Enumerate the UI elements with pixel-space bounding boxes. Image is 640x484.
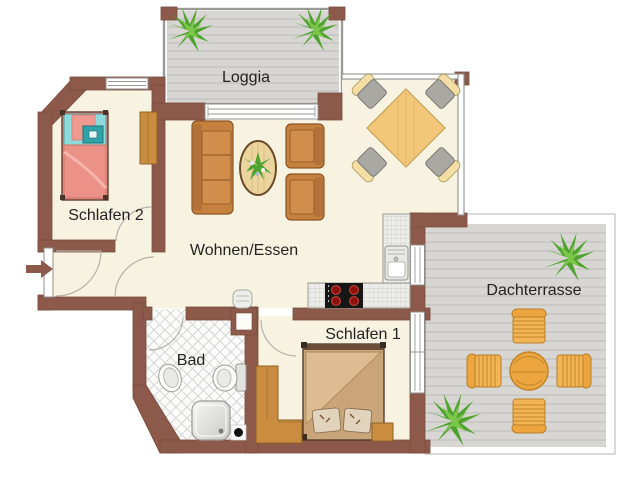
dining-set (350, 72, 462, 184)
pillow (312, 408, 341, 434)
terrace-chair (467, 354, 501, 388)
burner (350, 297, 359, 306)
bed-post (60, 110, 65, 115)
window-loggia-door (205, 104, 318, 119)
floor-plan-svg: Loggia Schlafen 2 Wohnen/Essen Bad Schla… (0, 0, 640, 484)
floor-plan: Loggia Schlafen 2 Wohnen/Essen Bad Schla… (0, 0, 640, 484)
loggia-corner-post (329, 7, 345, 20)
terrace-chair (512, 399, 546, 433)
armchair-seat (290, 130, 314, 162)
burner (332, 286, 341, 295)
room-label-schlafen2: Schlafen 2 (68, 207, 144, 224)
wall (38, 112, 52, 252)
room-dachterrasse (425, 214, 615, 454)
desk (140, 112, 157, 164)
room-label-schlafen1: Schlafen 1 (325, 326, 401, 343)
room-label-bad: Bad (177, 352, 205, 369)
toilet-tank (236, 364, 246, 391)
window-terrace-door (411, 245, 425, 285)
bed-post (60, 195, 65, 200)
pillow (343, 408, 372, 433)
glass-wall (458, 74, 464, 215)
bed-post (301, 342, 307, 348)
blanket-detail (89, 131, 97, 138)
sink-basin (388, 262, 405, 277)
shaft (236, 313, 252, 330)
room-label-wohnen-essen: Wohnen/Essen (190, 242, 298, 259)
window (106, 78, 148, 89)
nightstand (372, 423, 393, 441)
sink-faucet (394, 257, 398, 261)
terrace-chair (512, 309, 546, 343)
floor-drain (234, 428, 243, 437)
bed-post (103, 195, 108, 200)
burner (332, 297, 341, 306)
wall (152, 103, 205, 120)
sofa-seat (202, 131, 231, 204)
wall (38, 297, 146, 310)
shower-drain (219, 429, 224, 434)
bed-post (103, 110, 108, 115)
toilet-bowl (217, 369, 231, 387)
wall (143, 307, 152, 320)
armchair-back (314, 127, 323, 165)
room-label-dachterrasse: Dachterrasse (486, 282, 581, 299)
room-label-loggia: Loggia (222, 69, 270, 86)
wall (293, 308, 430, 320)
single-bed-blanket (64, 145, 106, 198)
armchair-seat (290, 180, 314, 214)
room-loggia (161, 7, 345, 104)
bed-footboard (303, 344, 384, 350)
floor-lamp (233, 290, 252, 308)
armchair-back (314, 177, 323, 217)
sofa-back (193, 124, 202, 211)
window-schlafen1 (411, 312, 425, 393)
terrace-table (510, 352, 548, 390)
terrace-chair (557, 354, 591, 388)
burner (350, 286, 359, 295)
loggia-corner-post (161, 7, 177, 20)
wall-pier (318, 93, 342, 120)
